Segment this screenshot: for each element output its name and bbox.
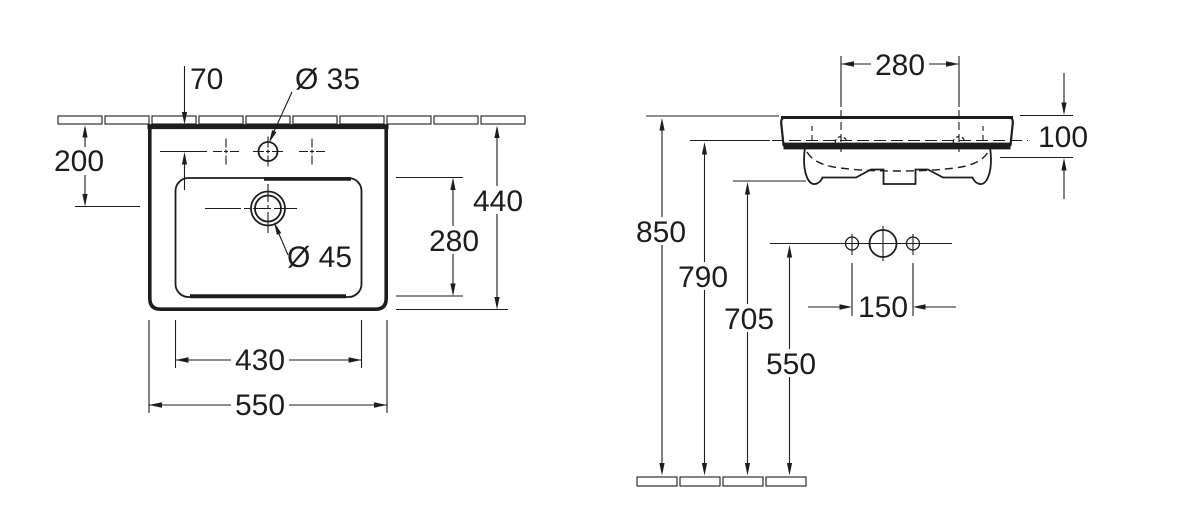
arrowhead-up bbox=[702, 142, 707, 155]
dim-bowl-width: 430 bbox=[176, 320, 362, 377]
dim-label-70: 70 bbox=[190, 63, 223, 96]
wall-tile bbox=[152, 116, 196, 124]
dim-label-430: 430 bbox=[235, 344, 285, 377]
dim-label-150: 150 bbox=[858, 291, 908, 324]
wall-tile bbox=[293, 116, 337, 124]
dim-fixing-hole-span: 280 bbox=[841, 49, 959, 107]
wall-tile bbox=[58, 116, 102, 124]
floor-tile bbox=[680, 477, 720, 486]
wall-tile bbox=[105, 116, 149, 124]
arrowhead-up bbox=[494, 126, 499, 139]
dim-label-550: 550 bbox=[235, 389, 285, 422]
arrowhead-left bbox=[841, 61, 854, 66]
dim-label-280: 280 bbox=[429, 225, 479, 258]
dim-label-dia45: Ø 45 bbox=[287, 241, 352, 274]
arrowhead-down bbox=[659, 463, 664, 476]
dim-underside-height: 705 bbox=[720, 181, 806, 476]
technical-drawing-page: 70 Ø 35 200 440 bbox=[0, 0, 1200, 511]
arrowhead-down bbox=[450, 284, 455, 297]
dim-label-790: 790 bbox=[678, 261, 728, 294]
dim-front-edge-height: 100 bbox=[1000, 73, 1088, 199]
arrowhead-down bbox=[1061, 103, 1066, 116]
dim-wall-to-drain: 200 bbox=[50, 125, 140, 207]
dim-label-dia35: Ø 35 bbox=[295, 63, 360, 96]
arrowhead-right bbox=[946, 61, 959, 66]
arrowhead-left bbox=[913, 304, 926, 309]
arrowhead-up bbox=[745, 182, 750, 195]
dim-label-440: 440 bbox=[473, 185, 523, 218]
dim-label-100: 100 bbox=[1038, 121, 1088, 154]
floor-tile bbox=[766, 477, 806, 486]
arrowhead-left bbox=[176, 357, 189, 362]
dim-overall-depth: 440 bbox=[396, 126, 527, 310]
arrowhead-up bbox=[659, 118, 664, 131]
washbasin-technical-drawing: 70 Ø 35 200 440 bbox=[0, 0, 1200, 511]
wall-tile bbox=[340, 116, 384, 124]
basin-front-edge-band bbox=[784, 143, 1011, 150]
dim-outlet-height: 550 bbox=[762, 245, 820, 476]
connection-holes bbox=[770, 226, 952, 261]
arrowhead-down bbox=[745, 463, 750, 476]
arrowhead-up bbox=[450, 178, 455, 191]
plan-view: 70 Ø 35 200 440 bbox=[50, 63, 527, 422]
wall-tile bbox=[387, 116, 431, 124]
arrowhead-right bbox=[374, 402, 387, 407]
arrowhead-down bbox=[494, 297, 499, 310]
wall-line bbox=[58, 116, 525, 124]
basin-underside-outline bbox=[804, 147, 991, 184]
arrowhead-right bbox=[840, 304, 853, 309]
dim-rim-height: 850 bbox=[632, 116, 779, 476]
arrowhead-down bbox=[787, 463, 792, 476]
wall-tile bbox=[199, 116, 243, 124]
dim-connection-span: 150 bbox=[808, 263, 956, 324]
wall-tile bbox=[246, 116, 290, 124]
floor-line bbox=[637, 477, 806, 486]
floor-tile bbox=[723, 477, 763, 486]
dim-label-850: 850 bbox=[636, 216, 686, 249]
dim-label-280: 280 bbox=[875, 49, 925, 82]
arrowhead-up bbox=[787, 245, 792, 258]
floor-tile bbox=[637, 477, 677, 486]
arrowhead-left bbox=[149, 402, 162, 407]
arrowhead-down bbox=[702, 463, 707, 476]
arrowhead-right bbox=[349, 357, 362, 362]
wall-tile bbox=[481, 116, 525, 124]
arrowhead-up bbox=[1061, 158, 1066, 171]
dim-label-200: 200 bbox=[54, 145, 104, 178]
dim-label-705: 705 bbox=[724, 303, 774, 336]
front-view: 280 100 850 790 bbox=[632, 49, 1088, 486]
dim-label-550: 550 bbox=[766, 348, 816, 381]
arrowhead-down bbox=[82, 194, 87, 207]
wall-tile bbox=[434, 116, 478, 124]
